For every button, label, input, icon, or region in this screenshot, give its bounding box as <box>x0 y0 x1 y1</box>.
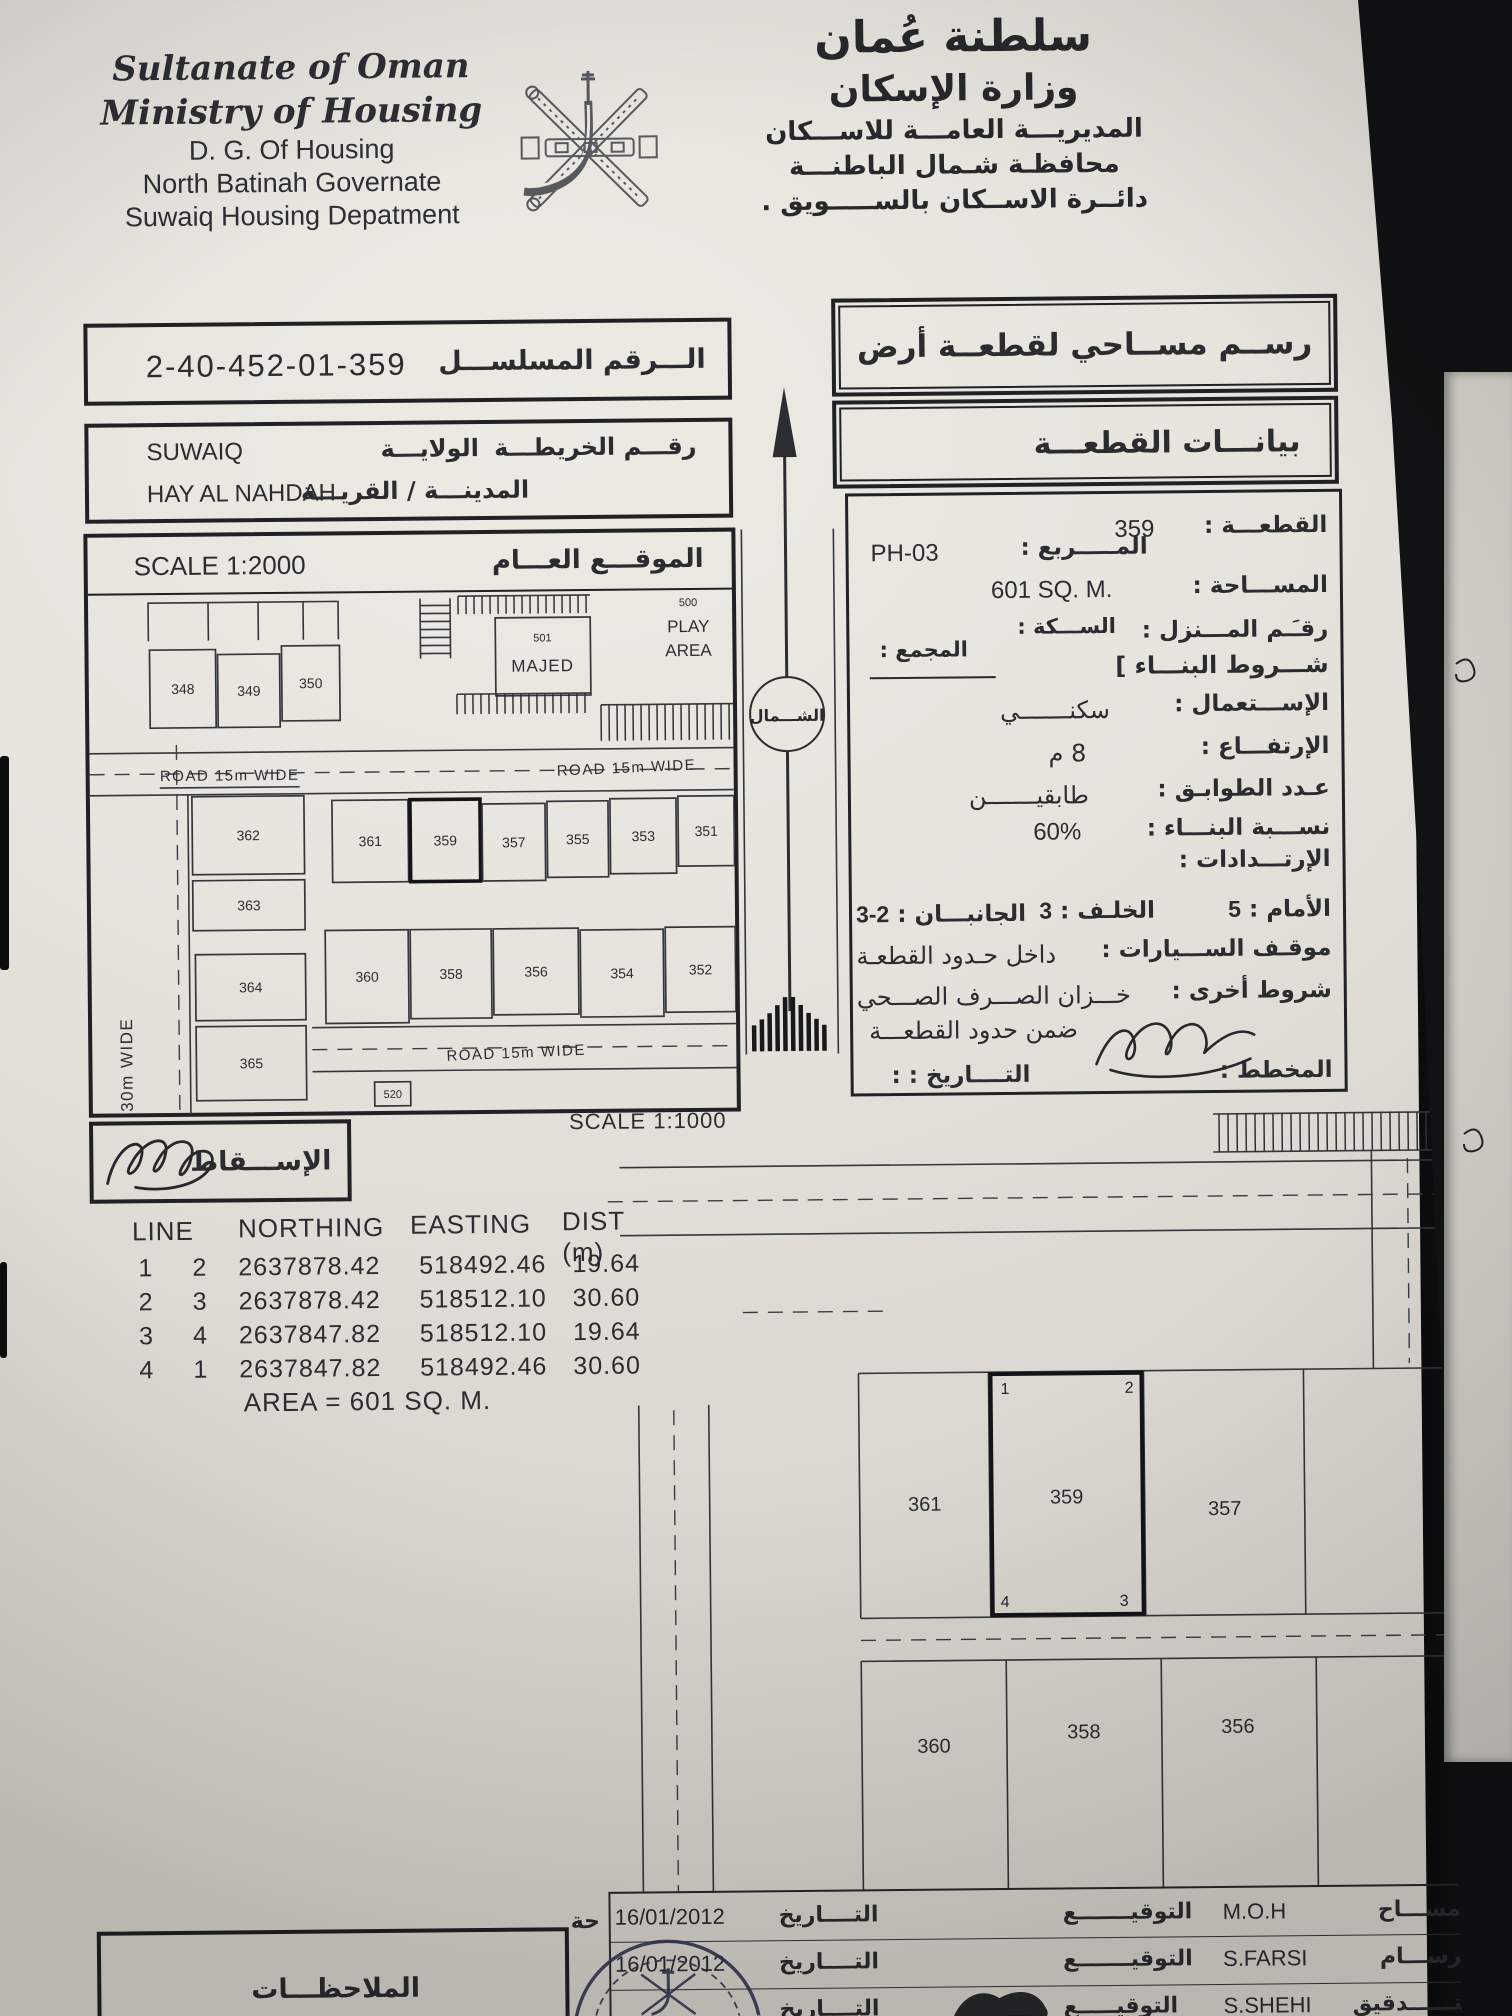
setback-front: الأمام : 5 <box>1228 895 1331 923</box>
coord-cell: 3 <box>139 1322 154 1351</box>
site-plan-box: SCALE 1:2000 الموقـــع العـــام 501 MAJE… <box>83 528 741 1118</box>
photo-edge-artifact <box>0 756 9 970</box>
corner-label-1: 1 <box>1001 1381 1010 1398</box>
map-number-label: رقـــم الخريطـــة <box>494 432 697 462</box>
signature-dlbl: التــــاريخ <box>779 1949 879 1975</box>
svg-text:359: 359 <box>434 832 458 848</box>
signature-role: الرســـام <box>1346 1943 1478 1969</box>
svg-text:354: 354 <box>610 965 634 981</box>
height-label: الإرتفـــاع <box>1201 733 1330 760</box>
wilaya-value: SUWAIQ <box>146 438 243 467</box>
photo-of-survey-document: Sultanate of Oman Ministry of Housing D.… <box>0 0 1512 2016</box>
auditor-signature-blob <box>941 1985 1061 2016</box>
site-plot-361: 361 <box>332 800 409 883</box>
coord-cell: 3 <box>193 1288 208 1317</box>
notes-box: الملاحظـــات <box>97 1927 570 2016</box>
use-label: الإســـتعمال <box>1174 690 1329 717</box>
conditions-title: [ شـــروط البنـــاء <box>1115 650 1329 680</box>
site-plot-363: 363 <box>193 880 305 931</box>
detail-plot-label-360: 360 <box>917 1736 951 1758</box>
coord-cell: 2637878.42 <box>228 1252 380 1282</box>
plot-label: القطعـــة <box>1204 512 1327 539</box>
corner-label-4: 4 <box>1001 1594 1010 1611</box>
play-area-line1: PLAY <box>667 617 709 636</box>
site-plot-520: 520 <box>375 1082 411 1106</box>
oman-national-emblem-icon <box>493 52 685 244</box>
svg-text:356: 356 <box>524 963 548 979</box>
ratio-value: 60% <box>1033 818 1081 846</box>
signature-name: S.SHEHI <box>1223 1992 1341 2016</box>
site-plan-title: الموقـــع العـــام <box>492 544 704 576</box>
location-box: SUWAIQ الولايـــة رقـــم الخريطـــة HAY … <box>84 418 733 524</box>
plot-data-panel: القطعـــة 359 المـــــربع PH-03 المســـا… <box>845 489 1348 1097</box>
site-plot-357: 357 <box>482 803 546 881</box>
header-ar-calligraphy1: سلطنة عُمان <box>680 7 1226 68</box>
road-15m-label-bottom: ROAD 15m WIDE <box>446 1042 586 1065</box>
site-plot-362: 362 <box>192 796 305 875</box>
svg-text:362: 362 <box>236 827 260 843</box>
site-plot-359: 359 <box>410 799 481 882</box>
document-title: رســم مســاحي لقطعــة أرض <box>857 325 1313 365</box>
header-ar-line1: المديريـــة العامـــة للاســـكان <box>681 111 1226 151</box>
svg-text:363: 363 <box>237 897 261 913</box>
signature-slbl: التوقيـــــــع <box>1063 1899 1193 1925</box>
site-plot-351: 351 <box>678 796 735 867</box>
other-conditions-value2: ضمن حدود القطعـــة <box>869 1015 1078 1045</box>
svg-text:351: 351 <box>694 823 718 839</box>
signature-name: M.O.H <box>1223 1898 1341 1925</box>
coord-cell: 518512.10 <box>399 1318 547 1348</box>
house-number-label: رقـَـم المـــنزل <box>1142 616 1329 644</box>
detail-plot-label-359: 359 <box>1050 1486 1084 1508</box>
setback-sides: الجانبـــان : 3-2 <box>856 900 1026 929</box>
coord-area-line: AREA = 601 SQ. M. <box>244 1385 492 1418</box>
majed-name: MAJED <box>511 656 574 676</box>
background-sheet <box>1444 372 1512 1762</box>
signature-name: S.FARSI <box>1223 1945 1341 1972</box>
coord-row-2: 232637878.42518512.1030.60 <box>111 1283 671 1322</box>
coord-cell: 2637847.82 <box>229 1354 381 1384</box>
site-plot-352: 352 <box>665 927 736 1013</box>
site-plot-350: 350 <box>281 645 340 721</box>
majed-number: 501 <box>533 632 551 644</box>
signature-role: التــــــدقيق <box>1346 1990 1478 2016</box>
coord-cell: 2 <box>192 1254 207 1283</box>
header-en-line3: D. G. Of Housing <box>88 132 496 169</box>
parking-label: موقـف الســـيارات <box>1101 935 1331 963</box>
site-plot-365: 365 <box>196 1026 307 1101</box>
street-label: الســـكة <box>1017 614 1116 639</box>
north-label: الشـــمال <box>750 706 825 726</box>
play-area-line2: AREA <box>665 641 712 660</box>
svg-text:520: 520 <box>384 1089 402 1101</box>
header-english: Sultanate of Oman Ministry of Housing D.… <box>87 44 497 235</box>
signature-slbl: التوقيـــــع <box>1063 1993 1178 2016</box>
setbacks-label: الإرتـــدادات <box>1179 846 1331 873</box>
coord-cell: 2637847.82 <box>229 1320 381 1350</box>
road-15m-label-left: ROAD 15m WIDE <box>160 767 300 785</box>
site-plot-353: 353 <box>610 798 677 874</box>
svg-text:357: 357 <box>502 834 526 850</box>
floors-value: طابقيـــــــن <box>969 781 1089 810</box>
svg-text:361: 361 <box>359 833 383 849</box>
planner-signature <box>1088 1004 1279 1094</box>
site-plot-360: 360 <box>325 930 409 1024</box>
site-plot-354: 354 <box>580 929 664 1017</box>
coord-cell: 2 <box>139 1288 154 1317</box>
site-plan-header: SCALE 1:2000 الموقـــع العـــام <box>87 532 732 596</box>
coord-header-line: LINE <box>132 1216 194 1248</box>
header-ar-line2: محافظـة شـمال الباطنـــة <box>682 146 1227 186</box>
coord-cell: 1 <box>193 1356 208 1385</box>
detail-plot-label-361: 361 <box>908 1494 942 1516</box>
coord-cell: 518492.46 <box>398 1250 546 1280</box>
coord-header-northing: NORTHING <box>238 1212 384 1244</box>
coord-cell: 518512.10 <box>399 1284 547 1314</box>
document-title-box: رســم مســاحي لقطعــة أرض <box>831 294 1338 397</box>
header-en-line4: North Batinah Governate <box>88 165 496 202</box>
detail-plot-label-357: 357 <box>1208 1498 1242 1520</box>
conditions-rule <box>870 676 996 679</box>
signature-role: المســـاح <box>1345 1897 1477 1923</box>
site-plot-356: 356 <box>493 928 579 1015</box>
projection-signature <box>99 1124 255 1201</box>
signature-slbl: التوقيـــــــع <box>1063 1946 1193 1972</box>
header-en-line1: Sultanate of Oman <box>87 44 495 92</box>
projection-box: الإســـقاط <box>89 1119 352 1204</box>
north-arrow-icon <box>772 387 797 457</box>
svg-text:353: 353 <box>632 828 656 844</box>
north-arrow-strip: الشـــمال <box>733 299 851 1110</box>
coord-header-easting: EASTING <box>410 1209 531 1241</box>
notes-label: الملاحظـــات <box>251 1973 420 2006</box>
coord-cell: 2637878.42 <box>229 1286 381 1316</box>
svg-text:358: 358 <box>439 966 463 982</box>
floors-label: عـدد الطوابـق <box>1157 775 1330 803</box>
complex-label: المجمع <box>879 637 968 662</box>
header-en-line5: Suwaiq Housing Depatment <box>88 198 496 235</box>
serial-number-box: 2-40-452-01-359 الـــرقم المسلســـل <box>83 318 732 406</box>
svg-text:352: 352 <box>689 961 713 977</box>
site-plan-scale: SCALE 1:2000 <box>134 550 306 583</box>
signature-dlbl: التــــاريخ <box>779 1996 879 2016</box>
site-plan-map: 501 MAJED 500 PLAY AREA ROAD 15m WIDE RO… <box>88 590 737 1116</box>
site-plot-364: 364 <box>195 954 306 1021</box>
coord-cell: 1 <box>138 1254 153 1283</box>
ratio-label: نســـبة البنـــاء <box>1147 814 1331 842</box>
coord-cell: 4 <box>193 1322 208 1351</box>
plot-data-title-box: بيانـــات القطعـــة <box>832 396 1339 489</box>
coord-cell: 4 <box>139 1356 154 1385</box>
site-plot-349: 349 <box>218 654 281 728</box>
photo-edge-artifact <box>0 1262 7 1358</box>
use-value: سكنـــــــي <box>1000 696 1110 725</box>
square-value: PH-03 <box>870 540 938 569</box>
corner-label-3: 3 <box>1120 1593 1129 1610</box>
svg-text:364: 364 <box>239 979 263 995</box>
road-30m-label: ROAD 30m WIDE <box>117 1018 137 1116</box>
serial-number-label: الـــرقم المسلســـل <box>438 344 706 378</box>
svg-text:355: 355 <box>566 831 590 847</box>
road-15m-label-right: ROAD 15m WIDE <box>556 757 696 780</box>
svg-text:350: 350 <box>299 675 323 691</box>
height-value: 8 م <box>1048 739 1086 767</box>
coord-row-1: 122637878.42518492.4619.64 <box>110 1249 670 1288</box>
corner-label-2: 2 <box>1125 1380 1134 1397</box>
coord-cell: 518492.46 <box>399 1352 547 1382</box>
coord-row-3: 342637847.82518512.1019.64 <box>111 1317 671 1356</box>
detail-plot-label-356: 356 <box>1221 1716 1255 1738</box>
setback-back: الخلـف : 3 <box>1039 897 1155 925</box>
header-ar-calligraphy2: وزارة الإسكان <box>681 63 1226 116</box>
header-arabic: سلطنة عُمان وزارة الإسكان المديريـــة ال… <box>680 7 1227 221</box>
hatch-strip-top <box>458 595 590 614</box>
parking-value: داخل حـدود القطعـة <box>856 941 1056 971</box>
city-label: المدينـــة / القريـــة <box>301 476 530 506</box>
other-conditions-label: شروط أخرى <box>1171 977 1331 1005</box>
signature-dlbl: التــــاريخ <box>779 1902 879 1928</box>
coordinate-table: LINE NORTHING EASTING DIST (m) 122637878… <box>110 1205 672 1425</box>
svg-text:360: 360 <box>355 969 379 985</box>
detail-plot-label-358: 358 <box>1067 1721 1101 1743</box>
header-en-line2: Ministry of Housing <box>87 88 495 136</box>
hatch-strip-right <box>601 704 737 741</box>
svg-text:365: 365 <box>240 1055 264 1071</box>
play-area-number: 500 <box>679 597 697 609</box>
area-label: المســـاحة <box>1192 572 1328 599</box>
site-plot-348: 348 <box>149 650 216 729</box>
site-plot-358: 358 <box>410 929 492 1019</box>
svg-text:349: 349 <box>237 683 261 699</box>
official-stamp <box>557 1921 780 2016</box>
square-label: المـــــربع <box>1020 534 1147 561</box>
document-paper: Sultanate of Oman Ministry of Housing D.… <box>0 0 1428 2016</box>
detail-plan: 3613593573603583561234 <box>591 1097 1512 1894</box>
wilaya-label: الولايـــة <box>380 434 479 463</box>
area-value: 601 SQ. M. <box>991 576 1113 605</box>
svg-text:348: 348 <box>171 681 195 697</box>
header-ar-line3: دائــرة الاســكان بالســـــويق . <box>682 181 1227 221</box>
serial-number-value: 2-40-452-01-359 <box>146 347 407 386</box>
planner-date-label: التــــاريخ : <box>891 1062 1030 1089</box>
plot-data-title: بيانـــات القطعـــة <box>1033 424 1300 462</box>
site-plot-355: 355 <box>547 801 609 878</box>
coord-row-4: 412637847.82518492.4630.60 <box>111 1351 671 1390</box>
